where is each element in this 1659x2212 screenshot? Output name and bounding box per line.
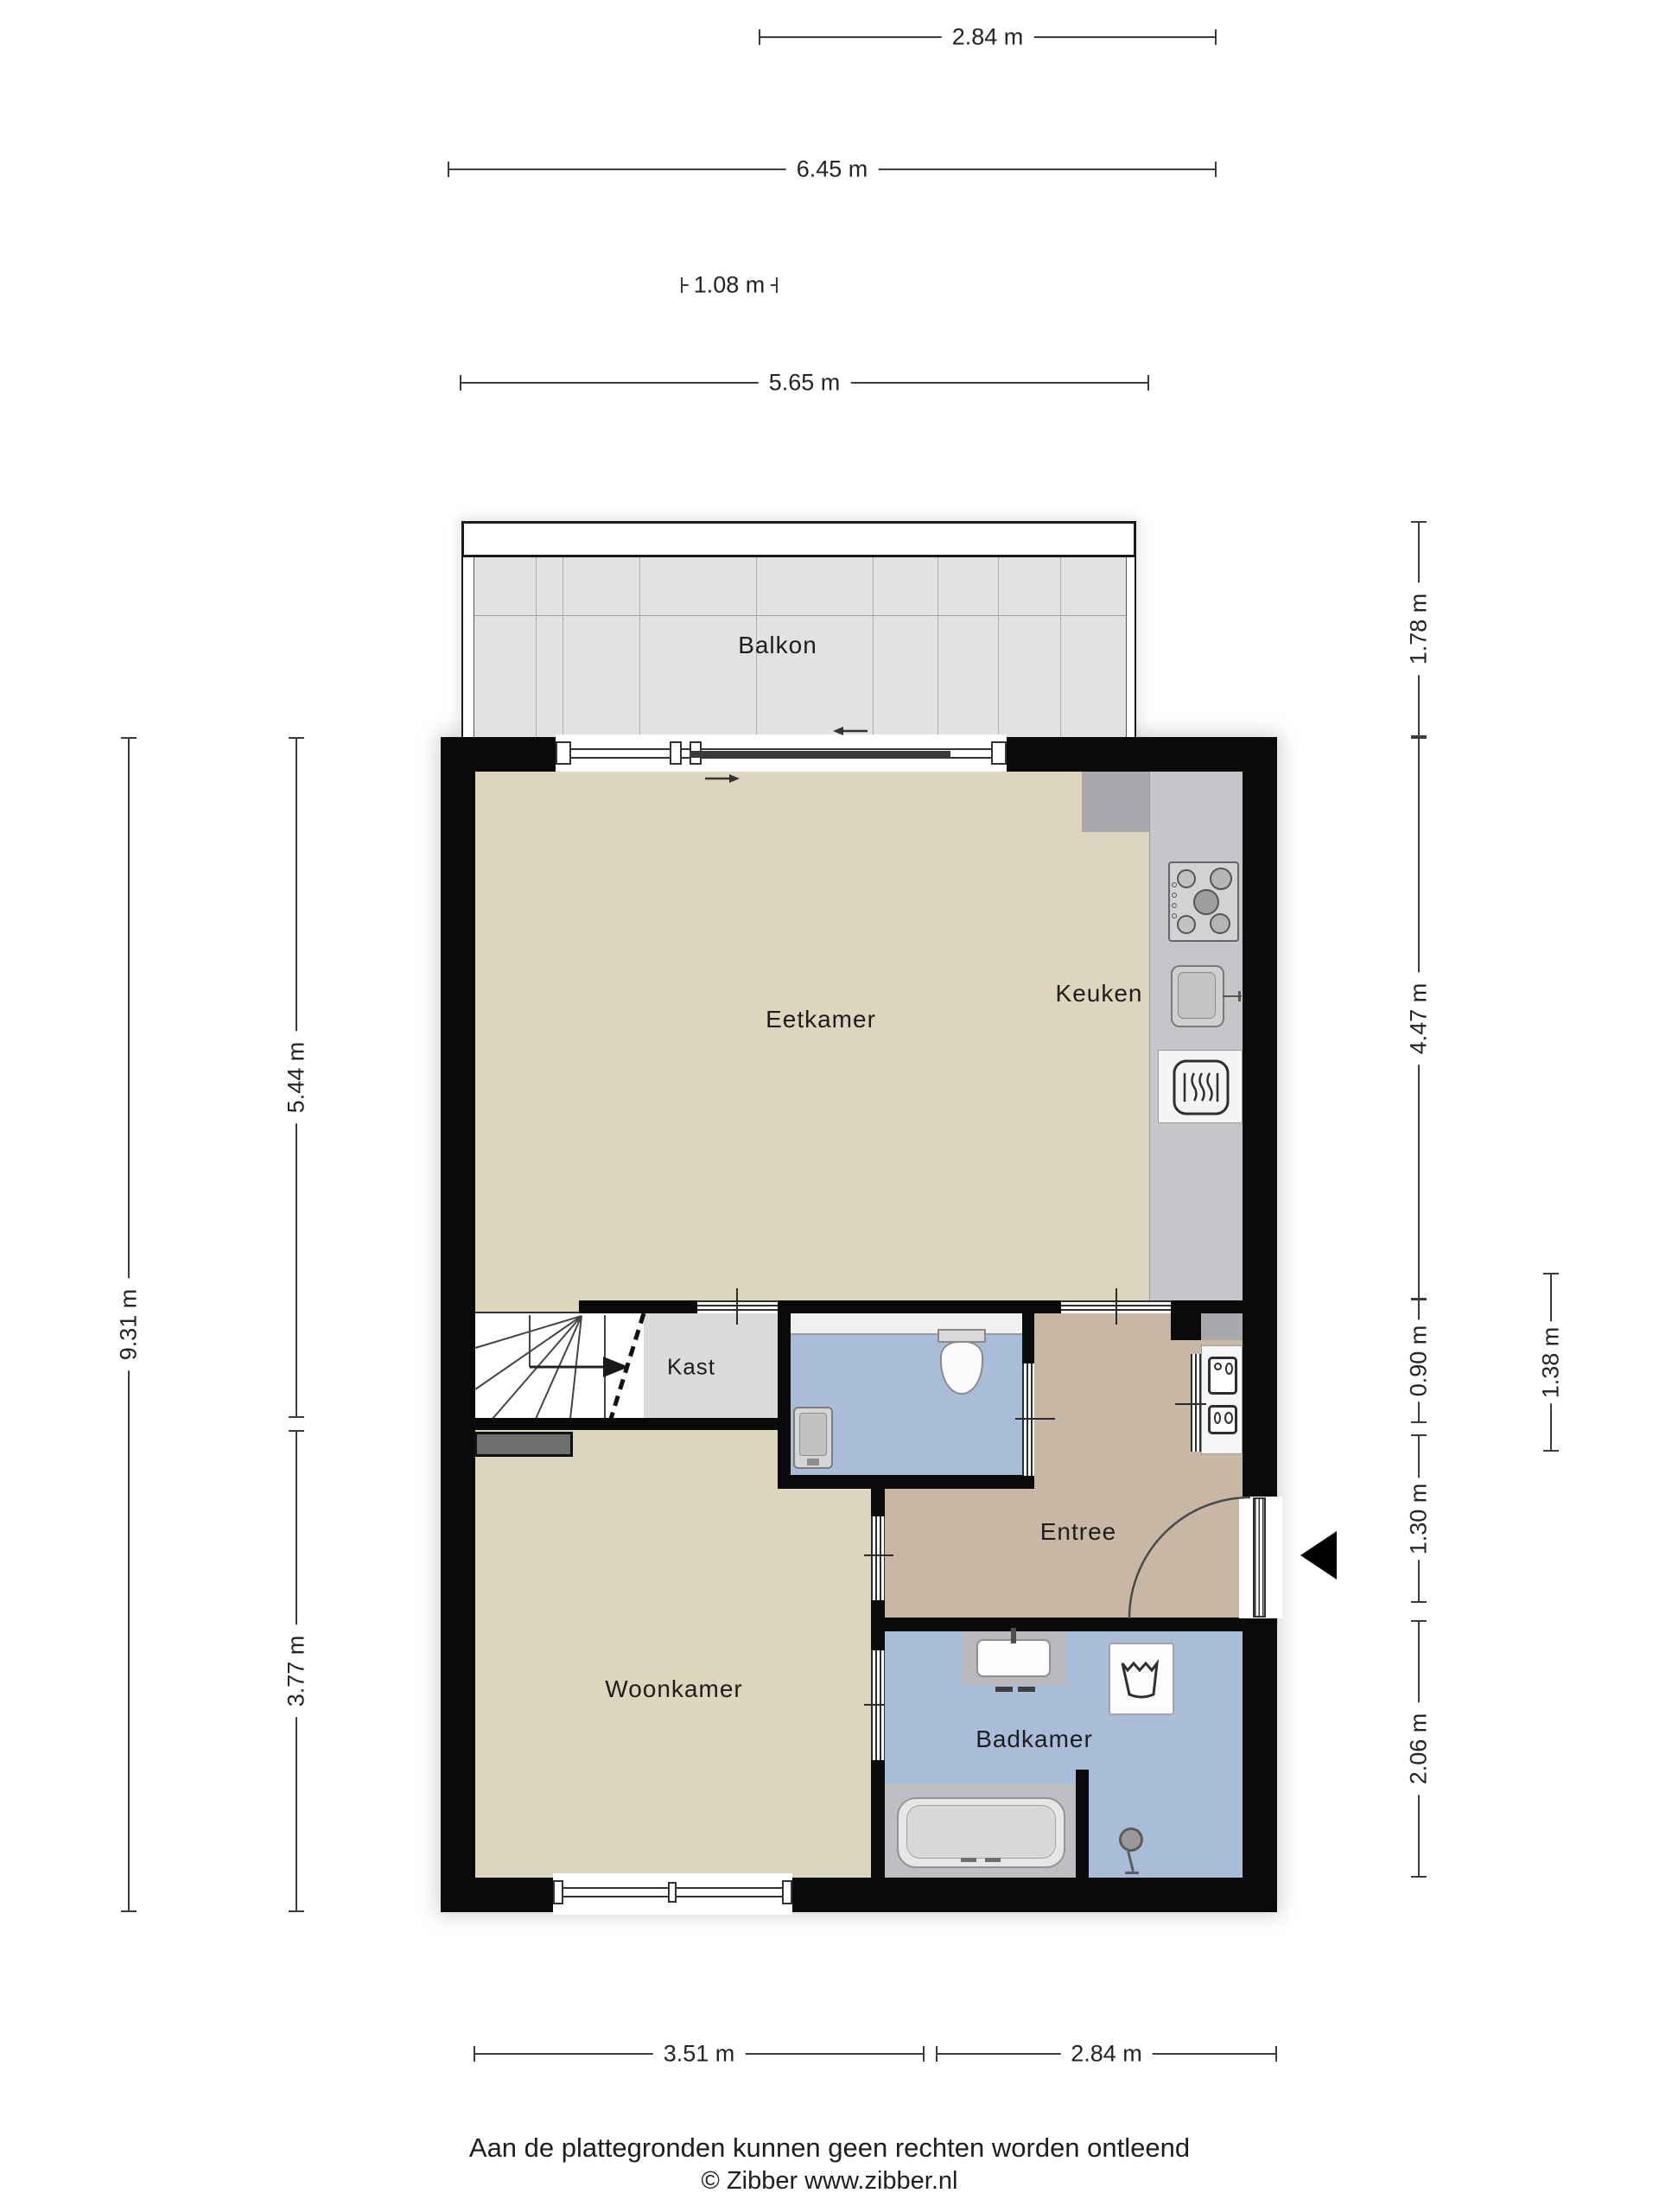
living-room-floor <box>475 1430 871 1878</box>
entry-arrow-icon <box>1300 1531 1337 1580</box>
kitchen-counter <box>1149 772 1243 1300</box>
stove-icon <box>1168 861 1239 942</box>
wall-bathroom-top <box>885 1618 1243 1631</box>
living-room-door-tick <box>864 1554 893 1556</box>
wall-right-lower <box>1243 1618 1277 1912</box>
meter-closet-block <box>1201 1313 1243 1340</box>
toilet-door-tick <box>1015 1418 1055 1420</box>
closet-opening-tick <box>736 1288 738 1325</box>
toilet-icon <box>938 1329 986 1396</box>
wall-closet-top-a <box>579 1300 697 1313</box>
wall-left <box>441 737 475 1912</box>
hall-floor-lower <box>885 1489 1243 1618</box>
wall-bottom-right <box>792 1878 1277 1912</box>
balcony-railing-top <box>461 521 1136 557</box>
wall-under-stairs <box>441 1418 791 1430</box>
room-label-keuken: Keuken <box>1056 980 1143 1007</box>
floor-plan: Balkon Kast <box>0 0 1659 2212</box>
kitchen-sink-icon <box>1171 965 1224 1027</box>
room-label-entree: Entree <box>1040 1518 1117 1546</box>
hall-opening-tick <box>1116 1288 1117 1325</box>
dining-kitchen-floor <box>475 772 1243 1312</box>
toilet-door <box>1022 1363 1034 1476</box>
balcony-railing-left <box>461 557 474 737</box>
bathroom-vanity <box>962 1631 1065 1685</box>
room-label-badkamer: Badkamer <box>976 1726 1093 1753</box>
shower-icon <box>1115 1823 1158 1875</box>
room-label-eetkamer: Eetkamer <box>766 1006 876 1033</box>
wall-closet-top-b <box>778 1300 1061 1313</box>
living-room-window <box>553 1873 792 1915</box>
wall-toilet-south <box>778 1475 1034 1489</box>
room-label-kast: Kast <box>667 1354 715 1381</box>
living-room-door <box>871 1516 885 1600</box>
oven-icon <box>1158 1050 1243 1123</box>
staircase <box>475 1312 644 1418</box>
footer-disclaimer: Aan de plattegronden kunnen geen rechten… <box>0 2133 1659 2164</box>
radiator <box>474 1432 573 1457</box>
wall-bottom-left <box>441 1878 553 1912</box>
balcony-railing-right <box>1126 557 1136 737</box>
meter-closet-niche <box>1201 1345 1243 1454</box>
front-door-leaf <box>1253 1497 1266 1618</box>
wall-toilet-west <box>778 1300 791 1489</box>
room-label-balkon: Balkon <box>738 632 817 659</box>
footer-copyright: © Zibber www.zibber.nl <box>0 2167 1659 2196</box>
room-label-woonkamer: Woonkamer <box>605 1675 742 1703</box>
meter-closet-tick <box>1175 1403 1206 1405</box>
toilet-basin-icon <box>793 1407 833 1469</box>
bathtub-icon <box>897 1797 1065 1868</box>
washing-machine-icon <box>1109 1643 1174 1715</box>
toilet-shelf <box>791 1313 1022 1335</box>
wall-right-upper <box>1243 737 1277 1497</box>
wall-top-right <box>1007 737 1277 772</box>
wall-bath-stub <box>1076 1770 1089 1878</box>
kitchen-counter-corner <box>1082 772 1149 832</box>
balcony-door <box>556 734 1007 772</box>
